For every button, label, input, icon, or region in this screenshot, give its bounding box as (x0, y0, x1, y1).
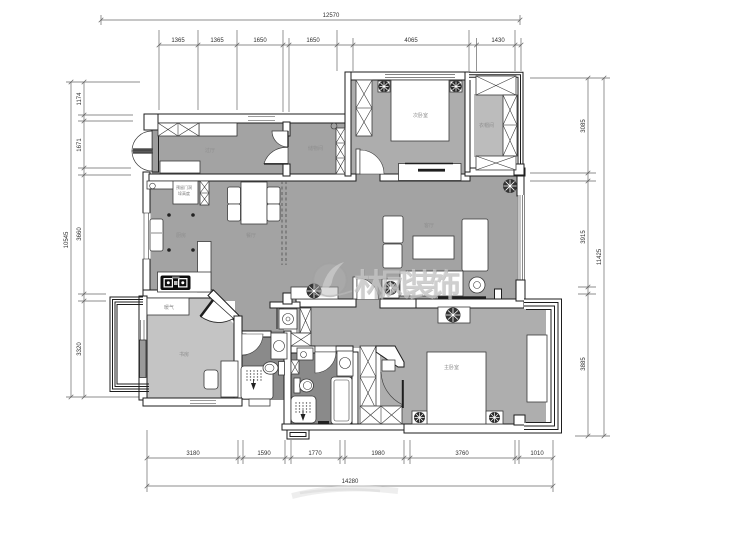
svg-text:10545: 10545 (64, 231, 70, 248)
svg-text:1671: 1671 (77, 138, 83, 152)
svg-text:林凤装饰: 林凤装饰 (354, 268, 459, 303)
svg-text:预留门洞: 预留门洞 (176, 184, 192, 190)
svg-text:1590: 1590 (257, 451, 271, 457)
svg-text:1174: 1174 (77, 92, 83, 106)
svg-text:11425: 11425 (597, 248, 603, 265)
svg-text:1430: 1430 (491, 38, 505, 44)
svg-text:1365: 1365 (210, 38, 224, 44)
svg-text:3085: 3085 (581, 119, 587, 133)
svg-text:衣帽间: 衣帽间 (479, 122, 494, 129)
svg-text:垛高度: 垛高度 (178, 190, 190, 196)
svg-text:3180: 3180 (186, 451, 200, 457)
svg-text:14280: 14280 (342, 479, 359, 485)
svg-text:3885: 3885 (581, 357, 587, 371)
svg-text:4065: 4065 (404, 38, 418, 44)
svg-text:1010: 1010 (530, 451, 544, 457)
svg-text:过厅: 过厅 (205, 147, 215, 154)
svg-text:厨房: 厨房 (176, 232, 186, 239)
svg-text:3760: 3760 (455, 451, 469, 457)
svg-text:1770: 1770 (308, 451, 322, 457)
svg-text:书房: 书房 (179, 351, 189, 358)
svg-text:客厅: 客厅 (424, 222, 434, 229)
svg-text:暖气: 暖气 (164, 304, 174, 311)
svg-text:3915: 3915 (581, 230, 587, 244)
svg-text:储物间: 储物间 (308, 145, 323, 152)
svg-text:12570: 12570 (323, 13, 340, 19)
svg-text:3660: 3660 (77, 227, 83, 241)
svg-text:1365: 1365 (171, 38, 185, 44)
svg-text:1650: 1650 (306, 38, 320, 44)
svg-text:1650: 1650 (253, 38, 267, 44)
svg-text:餐厅: 餐厅 (246, 232, 256, 239)
svg-text:次卧室: 次卧室 (413, 112, 428, 119)
svg-text:3320: 3320 (77, 342, 83, 356)
svg-text:主卧室: 主卧室 (444, 364, 459, 371)
svg-text:1980: 1980 (371, 451, 385, 457)
